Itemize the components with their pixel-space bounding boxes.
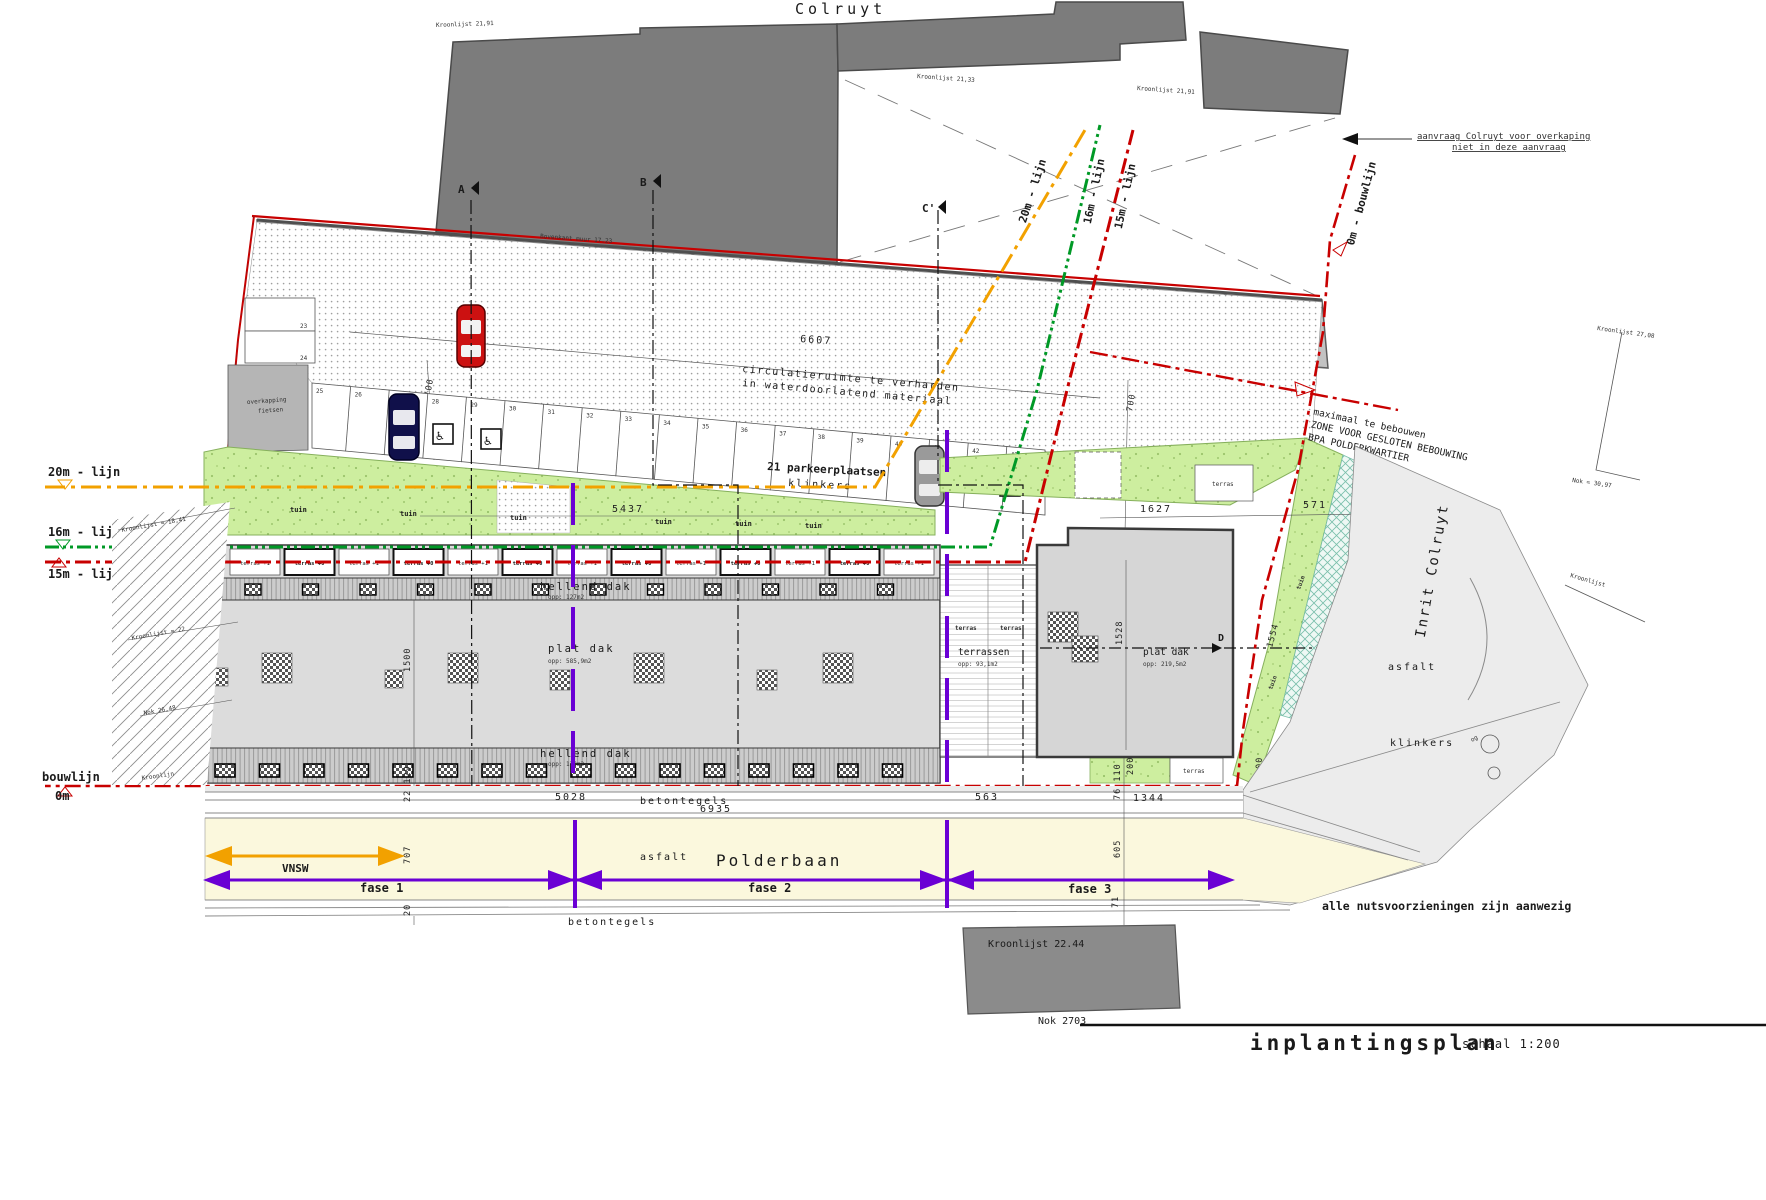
section-d-label: D	[1218, 633, 1224, 644]
svg-text:♿: ♿	[436, 429, 444, 444]
nok-30-label: Nok = 30,97	[1572, 477, 1613, 490]
dim-5028: 5028	[555, 792, 587, 803]
label-bouwlijn-0m: 0m	[55, 789, 69, 803]
dim-1344: 1344	[1133, 793, 1165, 804]
label-20m-lijn: 20m - lijn	[48, 465, 120, 479]
overkaping-note-line1: aanvraag Colruyt voor overkaping	[1417, 132, 1590, 142]
parking-number: 28	[432, 399, 440, 406]
tuin-label: tuin	[290, 506, 307, 514]
section-c1-label: C'	[922, 202, 935, 215]
kroonlijst-r2-label: Kroonlijst	[1569, 572, 1606, 589]
site-plan-page: Colruyt Kroonlijst 21,91 Kroonlijst 21,3…	[0, 0, 1766, 1200]
fase2-label: fase 2	[748, 881, 791, 895]
road-asfalt-label: asfalt	[640, 852, 688, 863]
terras-small-1: terras	[955, 625, 977, 632]
parking-number: 24	[300, 355, 308, 362]
dim-563: 563	[975, 792, 999, 803]
parking-number: 32	[586, 413, 594, 420]
tuin-label: tuin	[655, 518, 672, 526]
road-name-label: Polderbaan	[716, 851, 842, 870]
plat-dak-label: plat dak	[548, 643, 615, 655]
parking-number: 31	[548, 409, 556, 416]
site-plan-drawing: Colruyt Kroonlijst 21,91 Kroonlijst 21,3…	[0, 0, 1766, 1200]
parking-number: 42	[972, 448, 980, 455]
hellend-top-label: hellend dak	[540, 581, 632, 593]
parking-number: 38	[818, 434, 826, 441]
parking-number: 34	[663, 420, 671, 427]
overkaping-note-line2: niet in deze aanvraag	[1452, 143, 1566, 153]
garden-dim-5437: 5437	[612, 504, 644, 515]
label-bouwlijn: bouwlijn	[42, 770, 100, 784]
fase3-label: fase 3	[1068, 882, 1111, 896]
dim-20: 20	[403, 904, 413, 916]
fase1-label: fase 1	[360, 881, 403, 895]
colruyt-label: Colruyt	[795, 0, 886, 18]
nok-bottom-label: Nok 2703	[1038, 1016, 1086, 1027]
dim-571: 571	[1303, 500, 1327, 511]
dim-605: 605	[1113, 840, 1123, 858]
kroonlijst-top-right: Kroonlijst 21,91	[1137, 85, 1196, 96]
inrit-klinkers-label: klinkers	[1390, 738, 1454, 749]
parking-number: 26	[355, 392, 363, 399]
fietsenstalling-box	[1075, 452, 1121, 498]
vnsw-label: VNSW	[282, 862, 309, 875]
kroonlijst-bottom-label: Kroonlijst 22.44	[988, 939, 1084, 950]
label-15m-lijn: 15m - lijn	[48, 567, 120, 581]
utilities-note: alle nutsvoorzieningen zijn aanwezig	[1322, 899, 1571, 913]
plan-scale: schaal 1:200	[1462, 1037, 1561, 1051]
car-blue	[389, 394, 419, 460]
terras-right-bottom-label: terras	[1183, 768, 1205, 775]
tuin-label: tuin	[400, 510, 417, 518]
hellend-bottom-label: hellend dak	[540, 748, 632, 760]
title-block: inplantingsplan schaal 1:200	[1080, 1025, 1766, 1055]
dim-1528: 1528	[1115, 621, 1125, 645]
parking-number: 35	[702, 423, 710, 430]
kroonlijst-top-left: Kroonlijst 21,91	[436, 20, 494, 29]
parking-number: 39	[856, 437, 864, 444]
parking-number: 37	[779, 430, 787, 437]
dim-1500: 1500	[403, 648, 413, 672]
terrassen-opp: opp: 93,1m2	[958, 661, 998, 668]
plat-right-opp: opp: 219,5m2	[1143, 661, 1187, 668]
terras-right-top-label: terras	[1212, 481, 1234, 488]
parking-number: 23	[300, 323, 308, 330]
plat-dak-opp: opp: 585,9m2	[548, 658, 592, 665]
kroonlijst-27-label: Kroonlijst 27,08	[1597, 325, 1656, 340]
label-0m-bouwlijn-right: 0m - bouwlijn	[1344, 160, 1379, 247]
parking-number: 36	[741, 427, 749, 434]
parking-number: 33	[625, 416, 633, 423]
hellend-bottom-opp: opp: 130m2	[548, 761, 585, 768]
section-b-label: B	[640, 176, 647, 189]
label-20m-lijn-top: 20m - lijn	[1016, 157, 1049, 224]
label-16m-lijn: 16m - lijn	[48, 525, 120, 539]
right-annotations: Kroonlijst 27,08 Nok = 30,97 Kroonlijst	[1565, 325, 1655, 622]
dim-76110: 76 110	[1113, 763, 1123, 800]
dim-6935: 6935	[700, 804, 732, 815]
plat-right-label: plat dak	[1143, 647, 1189, 658]
dim-200a: 200	[1126, 757, 1136, 775]
tuin-label: tuin	[805, 522, 822, 530]
hellend-top-opp: opp: 127m2	[548, 594, 585, 601]
dim-707: 707	[403, 846, 413, 864]
kroonlijst-mid: Kroonlijst 21,33	[917, 73, 976, 84]
bottom-building: Kroonlijst 22.44 Nok 2703	[963, 925, 1180, 1027]
tuin-label: tuin	[510, 514, 527, 522]
dim-1627: 1627	[1140, 504, 1172, 515]
parking-number: 25	[316, 388, 324, 395]
parking-number: 30	[509, 406, 517, 413]
section-a-label: A	[458, 183, 465, 196]
inrit-asfalt-label: asfalt	[1388, 662, 1436, 673]
svg-text:♿: ♿	[484, 434, 492, 449]
circulation-dim-6607: 6607	[800, 334, 833, 347]
terrassen-label: terrassen	[958, 647, 1009, 658]
overkaping-note: aanvraag Colruyt voor overkaping niet in…	[1342, 132, 1590, 153]
dim-71: 71	[1111, 896, 1121, 908]
betontegels-bottom-label: betontegels	[568, 917, 656, 928]
terras-small-2: terras	[1000, 625, 1022, 632]
dim-22129: 22 129	[403, 765, 413, 802]
